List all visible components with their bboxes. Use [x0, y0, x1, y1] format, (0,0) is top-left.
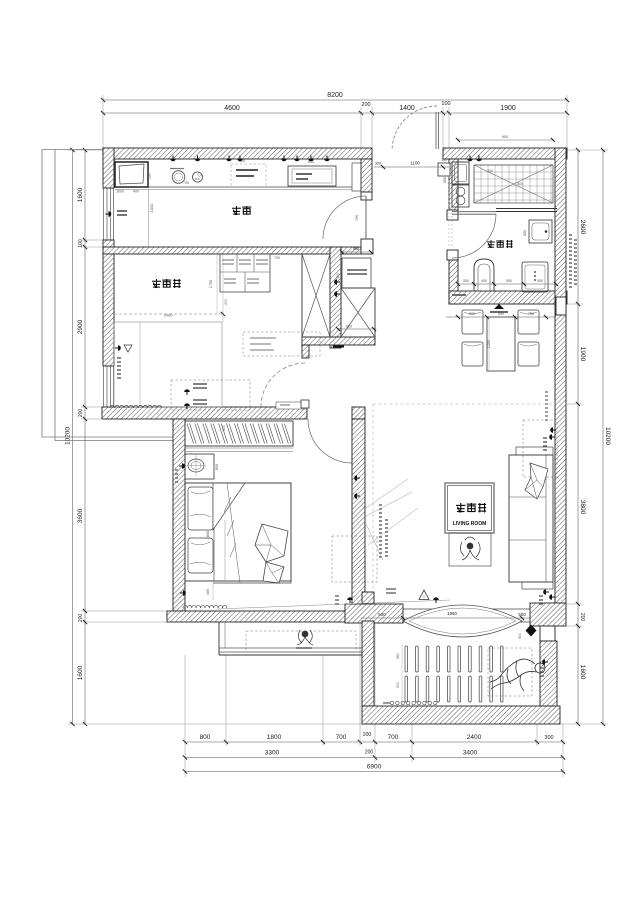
svg-text:200: 200	[363, 732, 372, 738]
svg-text:580: 580	[353, 247, 359, 251]
svg-text:550: 550	[537, 279, 543, 283]
svg-text:1900: 1900	[500, 105, 516, 112]
svg-text:1900: 1900	[579, 347, 586, 362]
svg-text:200: 200	[78, 614, 84, 623]
svg-text:3300: 3300	[265, 750, 280, 757]
svg-text:8200: 8200	[327, 92, 343, 99]
svg-text:550: 550	[148, 173, 152, 179]
svg-text:900: 900	[487, 169, 493, 173]
svg-text:1000: 1000	[149, 203, 154, 213]
svg-text:100: 100	[78, 239, 84, 248]
svg-text:4600: 4600	[224, 105, 240, 112]
svg-text:100: 100	[441, 101, 450, 107]
svg-text:550: 550	[498, 312, 504, 316]
svg-text:600: 600	[222, 425, 226, 431]
svg-text:10200: 10200	[604, 427, 611, 445]
svg-text:6900: 6900	[367, 764, 382, 771]
svg-text:1750: 1750	[209, 280, 213, 288]
svg-text:800: 800	[517, 182, 523, 186]
svg-text:700: 700	[274, 256, 280, 260]
svg-text:400: 400	[518, 633, 522, 639]
svg-text:1800: 1800	[206, 531, 210, 539]
svg-text:3400: 3400	[463, 750, 478, 757]
svg-text:2000: 2000	[164, 313, 174, 318]
svg-text:200: 200	[361, 102, 370, 108]
svg-text:750: 750	[528, 312, 534, 316]
svg-text:2600: 2600	[579, 220, 586, 235]
svg-text:400: 400	[206, 589, 210, 595]
svg-text:300: 300	[544, 735, 553, 741]
svg-text:700: 700	[388, 734, 399, 741]
svg-text:800: 800	[200, 734, 211, 741]
svg-text:380: 380	[441, 158, 447, 162]
svg-text:650: 650	[346, 325, 352, 329]
svg-text:2000: 2000	[116, 190, 124, 194]
svg-text:350: 350	[463, 279, 469, 283]
svg-text:550: 550	[443, 177, 447, 183]
svg-text:1100: 1100	[410, 161, 420, 166]
svg-text:200: 200	[78, 409, 84, 418]
svg-text:3800: 3800	[579, 500, 586, 515]
svg-text:550: 550	[506, 279, 512, 283]
svg-text:560: 560	[336, 273, 340, 279]
svg-text:400: 400	[481, 279, 487, 283]
svg-text:1600: 1600	[579, 665, 586, 680]
svg-text:1960: 1960	[447, 611, 458, 616]
svg-text:2900: 2900	[77, 319, 84, 334]
svg-text:!: !	[423, 594, 424, 599]
svg-text:1800: 1800	[267, 734, 282, 741]
svg-text:1600: 1600	[77, 665, 84, 680]
svg-text:3600: 3600	[77, 508, 84, 523]
svg-text:200: 200	[579, 613, 585, 622]
svg-text:10200: 10200	[65, 427, 72, 445]
svg-text:2400: 2400	[467, 734, 482, 741]
svg-text:700: 700	[336, 734, 347, 741]
svg-text:200: 200	[365, 750, 374, 756]
svg-text:450: 450	[194, 177, 199, 181]
svg-text:600: 600	[215, 464, 219, 470]
svg-text:720: 720	[183, 181, 189, 185]
svg-text:400: 400	[133, 190, 139, 194]
svg-text:900: 900	[502, 135, 508, 139]
svg-text:850: 850	[523, 230, 527, 236]
svg-text:500: 500	[396, 682, 400, 688]
svg-text:560: 560	[396, 653, 400, 659]
svg-text:500: 500	[378, 612, 386, 617]
svg-text:800: 800	[469, 312, 475, 316]
svg-text:1600: 1600	[77, 187, 84, 202]
svg-text:LIVING ROOM: LIVING ROOM	[453, 521, 487, 527]
svg-text:1400: 1400	[399, 105, 415, 112]
svg-text:300: 300	[375, 162, 381, 166]
svg-text:700: 700	[355, 215, 359, 221]
svg-text:200: 200	[224, 299, 228, 305]
svg-text:500: 500	[518, 612, 526, 617]
